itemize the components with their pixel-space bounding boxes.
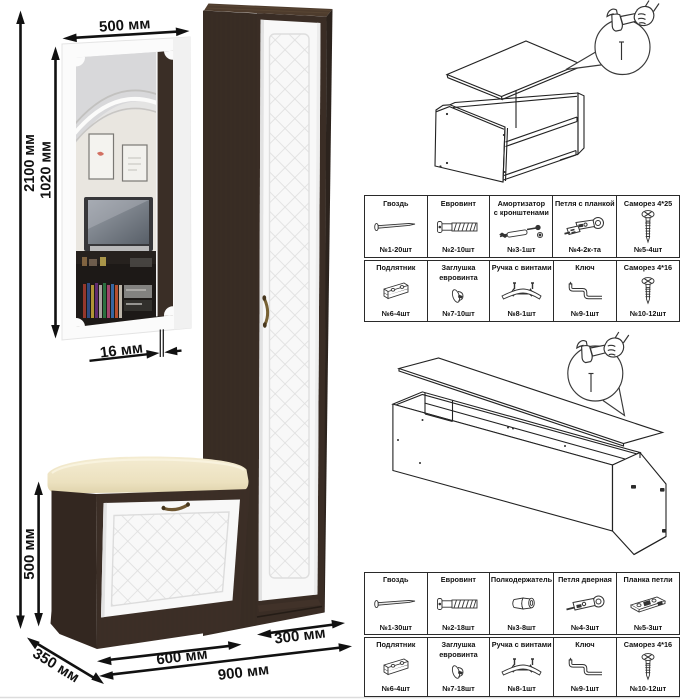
svg-text:300 мм: 300 мм xyxy=(273,624,326,647)
svg-text:500 мм: 500 мм xyxy=(21,528,38,579)
svg-text:1020 мм: 1020 мм xyxy=(39,141,55,199)
svg-text:500 мм: 500 мм xyxy=(98,15,150,36)
svg-text:16 мм: 16 мм xyxy=(99,339,144,361)
svg-text:2100 мм: 2100 мм xyxy=(22,134,38,192)
svg-text:900 мм: 900 мм xyxy=(217,661,270,684)
